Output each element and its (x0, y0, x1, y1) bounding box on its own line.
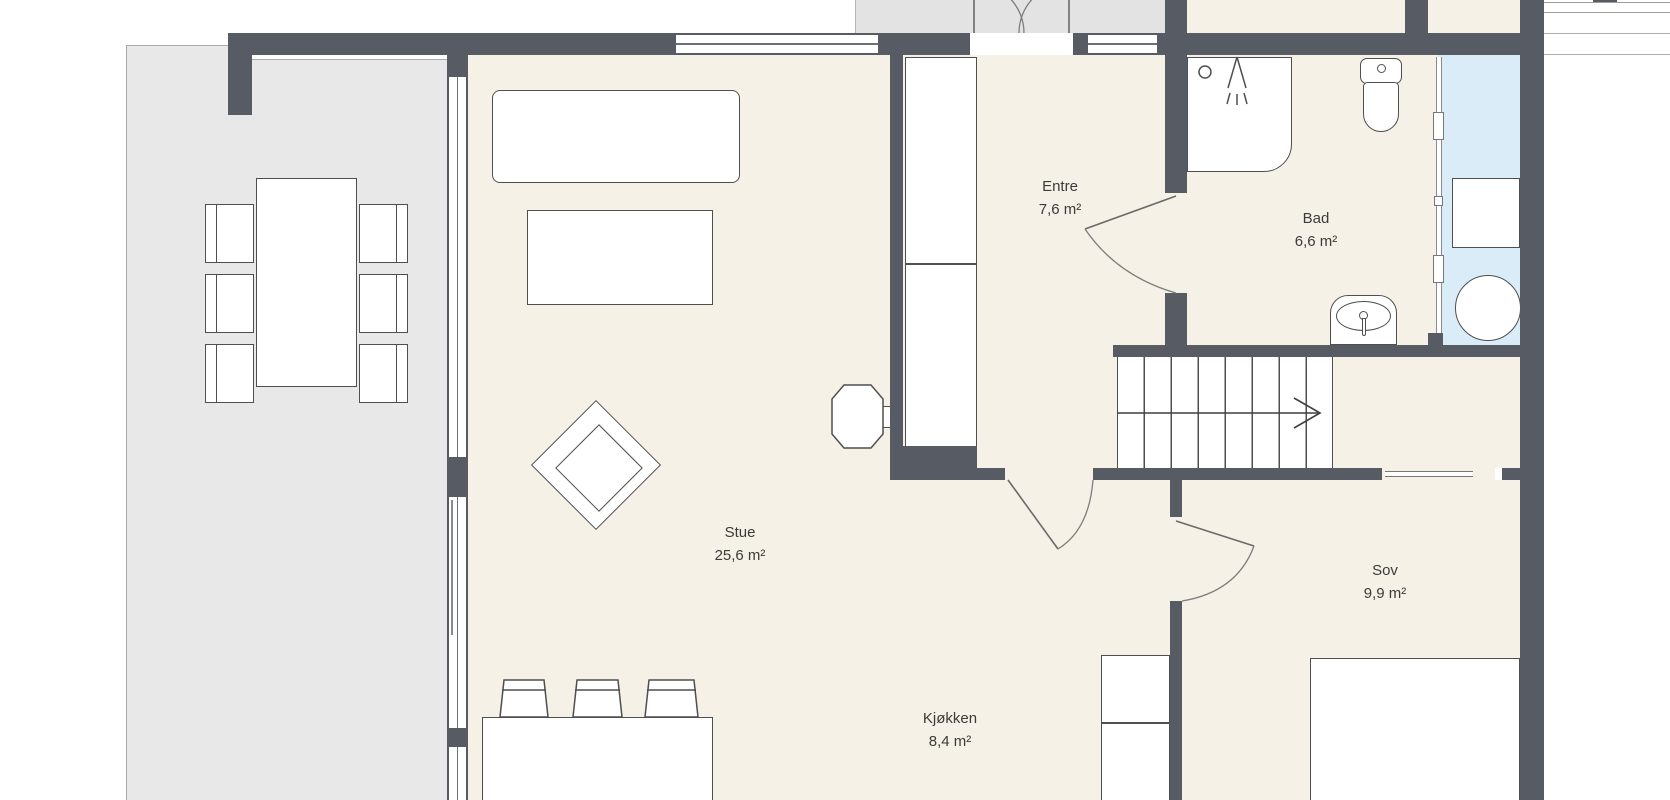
window-left-1 (447, 77, 468, 457)
room-name: Bad (1303, 210, 1330, 227)
washing-machine (1452, 178, 1520, 248)
dining-chair (359, 204, 408, 263)
wall-terrace-stub (228, 55, 252, 115)
wall-left-pier (447, 457, 468, 497)
wall-right (1520, 0, 1544, 800)
shower (1187, 57, 1292, 172)
floor-plan: Stue 25,6 m² Entre 7,6 m² Bad 6,6 m² Sov… (0, 0, 1670, 800)
laundry-basket (1455, 275, 1521, 341)
wall-entre-bad (1165, 0, 1187, 193)
wall-under-stairs (1093, 468, 1382, 480)
toilet-bowl (1363, 82, 1399, 132)
dining-chair (359, 344, 408, 403)
room-label-entre: Entre 7,6 m² (980, 175, 1140, 221)
room-area: 8,4 m² (929, 733, 972, 750)
wall-bath-south (1113, 345, 1520, 357)
door-jamb (1495, 468, 1502, 480)
room-area: 9,9 m² (1364, 585, 1407, 602)
window-top-2 (1088, 33, 1157, 55)
room-label-kjokken: Kjøkken 8,4 m² (870, 707, 1030, 753)
wall-partition-stub (1428, 333, 1443, 345)
window-top-1 (676, 33, 878, 55)
dining-chair (205, 204, 254, 263)
room-label-bad: Bad 6,6 m² (1236, 207, 1396, 253)
terrace-floor (126, 45, 447, 800)
wall-top (878, 33, 970, 55)
room-label-sov: Sov 9,9 m² (1305, 559, 1465, 605)
dining-chair (205, 344, 254, 403)
wall-left-segment (447, 55, 468, 77)
upper-room-strip (1187, 0, 1520, 33)
bed (1310, 658, 1520, 800)
wall-stue-entre (890, 55, 903, 480)
wall-top (1157, 33, 1544, 55)
partition-handle (1433, 112, 1444, 140)
sofa (492, 90, 740, 183)
dining-table (256, 178, 357, 387)
wall-stub (1502, 468, 1520, 480)
coffee-table (527, 210, 713, 305)
partition-handle (1433, 255, 1444, 283)
dining-chair (205, 274, 254, 333)
room-area: 6,6 m² (1295, 233, 1338, 250)
wall-top (228, 33, 676, 55)
wall-left-pier (447, 728, 468, 747)
kitchen-cabinet (1101, 655, 1170, 800)
room-area: 25,6 m² (715, 547, 766, 564)
room-name: Sov (1372, 562, 1398, 579)
room-area: 7,6 m² (1039, 201, 1082, 218)
room-name: Kjøkken (923, 710, 977, 727)
room-label-stue: Stue 25,6 m² (660, 521, 820, 567)
sliding-door (1385, 471, 1473, 477)
dining-chair (359, 274, 408, 333)
wardrobe (905, 57, 977, 450)
window-left-3 (447, 747, 468, 800)
staircase (1117, 356, 1333, 472)
wall-kjokken-sov (1170, 480, 1182, 517)
room-name: Stue (725, 524, 756, 541)
wall-entre-bad (1165, 293, 1187, 345)
wall-kitchen-north (890, 468, 1005, 480)
faucet-stem (1362, 318, 1366, 336)
entry-porch-floor (855, 0, 1165, 33)
wall-top (1073, 33, 1088, 55)
upper-railing (1544, 2, 1670, 13)
entry-threshold (970, 33, 1073, 55)
kitchen-island (482, 717, 713, 800)
room-name: Entre (1042, 178, 1078, 195)
wall-kjokken-sov (1170, 601, 1182, 800)
exterior-edge-band (1544, 33, 1670, 55)
partition-handle (1434, 196, 1443, 206)
sliding-pane-line (451, 500, 453, 635)
toilet-button (1377, 64, 1386, 73)
wall-upper-stub (1405, 0, 1428, 33)
